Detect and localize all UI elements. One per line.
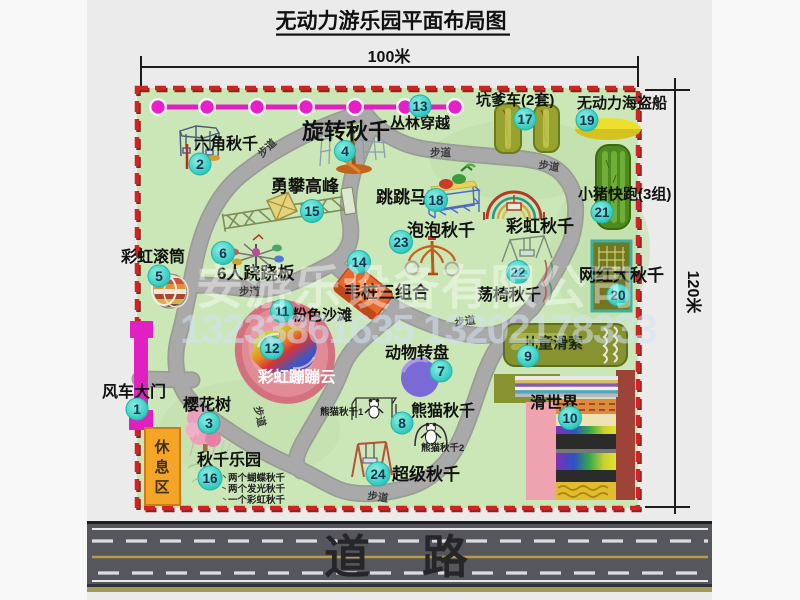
svg-text:勇攀高峰: 勇攀高峰 — [271, 176, 340, 196]
svg-text:19: 19 — [579, 113, 594, 128]
svg-text:120米: 120米 — [684, 271, 703, 315]
svg-text:区: 区 — [154, 479, 169, 496]
svg-text:道: 道 — [324, 531, 370, 583]
svg-text:两个发光秋千: 两个发光秋千 — [228, 483, 286, 495]
svg-text:熊猫秋千2: 熊猫秋千2 — [421, 442, 464, 454]
svg-text:18: 18 — [428, 193, 444, 208]
svg-text:六角秋千: 六角秋千 — [194, 134, 258, 153]
svg-text:5: 5 — [155, 268, 163, 284]
svg-text:熊猫秋千1: 熊猫秋千1 — [320, 406, 364, 418]
svg-text:17: 17 — [517, 112, 532, 127]
svg-text:路: 路 — [422, 531, 469, 583]
svg-text:坑爹车(2套): 坑爹车(2套) — [476, 91, 554, 109]
svg-text:10: 10 — [562, 411, 577, 426]
svg-text:彩虹蹦蹦云: 彩虹蹦蹦云 — [257, 367, 336, 386]
svg-text:13233861635 13202178333: 13233861635 13202178333 — [180, 306, 657, 352]
svg-text:23: 23 — [393, 235, 409, 250]
svg-text:13: 13 — [412, 99, 428, 114]
svg-text:16: 16 — [202, 471, 218, 486]
svg-text:步道: 步道 — [430, 146, 451, 159]
svg-text:超级秋千: 超级秋千 — [392, 464, 460, 484]
svg-text:无动力游乐园平面布局图: 无动力游乐园平面布局图 — [276, 9, 507, 33]
svg-text:跳跳马: 跳跳马 — [376, 187, 427, 207]
svg-text:100米: 100米 — [368, 47, 412, 66]
svg-text:3: 3 — [205, 415, 213, 431]
svg-text:21: 21 — [594, 205, 610, 220]
svg-text:1: 1 — [133, 401, 141, 417]
svg-text:小猪快跑(3组): 小猪快跑(3组) — [578, 185, 671, 203]
svg-text:泡泡秋千: 泡泡秋千 — [407, 220, 475, 240]
svg-text:8: 8 — [398, 415, 406, 431]
svg-text:24: 24 — [370, 467, 386, 482]
svg-text:6: 6 — [219, 245, 227, 261]
svg-text:4: 4 — [341, 143, 349, 159]
svg-text:彩虹秋千: 彩虹秋千 — [505, 216, 574, 236]
svg-text:一个彩虹秋千: 一个彩虹秋千 — [228, 494, 286, 506]
svg-text:樱花树: 樱花树 — [183, 395, 231, 414]
svg-text:彩虹滚筒: 彩虹滚筒 — [120, 247, 185, 266]
svg-text:15: 15 — [304, 204, 320, 219]
svg-text:2: 2 — [196, 156, 204, 172]
svg-text:熊猫秋千: 熊猫秋千 — [411, 401, 475, 420]
svg-text:休: 休 — [153, 438, 170, 456]
svg-text:息: 息 — [154, 458, 169, 476]
svg-text:7: 7 — [437, 363, 445, 379]
svg-text:两个蝴蝶秋千: 两个蝴蝶秋千 — [228, 472, 286, 484]
